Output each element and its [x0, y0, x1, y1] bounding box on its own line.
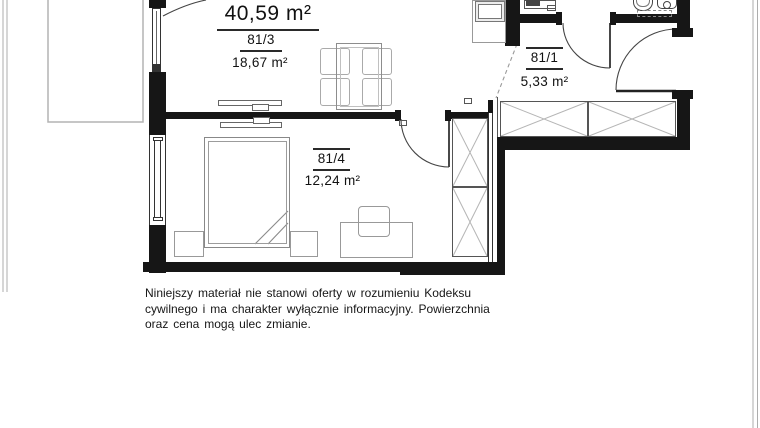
wall-kitchen: [505, 0, 520, 46]
room-81-1-rule-bottom: [526, 68, 563, 70]
entrance-jamb-top: [672, 28, 693, 37]
desk-chair: [358, 206, 390, 237]
bed-mattress: [208, 141, 287, 244]
hallway-wardrobe-right: [588, 101, 676, 137]
wall-bathroom-seg1: [520, 14, 556, 23]
wall-left-seg1: [149, 0, 166, 8]
wall-hall-bottom: [497, 137, 690, 150]
bathroom-door-arc: [563, 23, 610, 68]
total-area-label: 40,59 m²: [217, 2, 319, 26]
room-81-4-area: 12,24 m²: [299, 173, 366, 188]
balcony-door-panel-line: [156, 11, 157, 69]
floorplan-page: 40,59 m² 81/3 18,67 m² 81/1 5,33 m² 81/4…: [0, 0, 760, 428]
bedroom-window-cap-bottom: [153, 217, 163, 221]
valve-symbol: [547, 5, 556, 11]
nightstand-left: [174, 231, 204, 257]
room-81-4-rule-top: [313, 148, 350, 150]
bedroom-window-cap-top: [153, 137, 163, 141]
wall-bottom-step: [400, 270, 505, 275]
bedroom-window-sash: [154, 139, 161, 221]
hallway-wardrobe-left: [500, 101, 588, 137]
balcony-outline: [48, 0, 143, 122]
kitchen-sink-basin: [478, 4, 502, 19]
room-81-4-number: 81/4: [313, 151, 350, 166]
partition-top-junction: [488, 100, 493, 113]
balcony-door-arc: [163, 0, 206, 16]
dining-table-inner: [340, 47, 379, 107]
bedroom-door-arc: [401, 119, 449, 167]
bedroom-wardrobe-bottom: [452, 187, 488, 257]
room-81-1-number: 81/1: [526, 50, 563, 65]
bedroom-door-jamb-right: [445, 110, 451, 121]
room-81-4-rule-bottom: [313, 169, 350, 171]
room-81-3-number: 81/3: [240, 32, 282, 47]
socket-symbol-living: [464, 98, 472, 104]
radiator-living: [218, 100, 282, 106]
room-81-3-rule: [240, 50, 282, 52]
entrance-door-arc: [616, 29, 677, 90]
radiator-bedroom: [220, 122, 282, 128]
disclaimer-block: Niniejszy materiał nie stanowi oferty w …: [145, 286, 525, 333]
nightstand-right: [290, 231, 318, 257]
disclaimer-line-3: oraz cena mogą ulec zmianie.: [145, 317, 525, 333]
disclaimer-line-2: cywilnego i ma charakter wyłącznie infor…: [145, 302, 525, 318]
room-81-3-area: 18,67 m²: [222, 55, 298, 70]
room-boundary-dashed-line: [496, 44, 517, 98]
wall-left-seg2: [149, 72, 166, 135]
radiator-bedroom-valve: [253, 117, 270, 124]
socket-symbol-bedroom: [399, 120, 407, 126]
bedroom-wardrobe-top: [452, 118, 488, 187]
wall-right-lower: [497, 150, 505, 273]
room-81-1-rule-top: [526, 47, 563, 49]
total-area-underline: [217, 29, 319, 31]
wall-divider-seg1: [149, 112, 400, 119]
radiator-bathroom: [637, 10, 672, 17]
wardrobe-niche-edge: [497, 97, 499, 137]
wall-hall-right-seg1: [677, 0, 690, 28]
balcony-door-hinge: [152, 64, 161, 72]
disclaimer-line-1: Niniejszy materiał nie stanowi oferty w …: [145, 286, 525, 302]
room-81-1-area: 5,33 m²: [511, 74, 578, 89]
bathroom-door-jamb-left: [556, 12, 562, 25]
entrance-jamb-bottom: [672, 90, 693, 99]
toilet-bowl: [663, 1, 671, 9]
radiator-living-valve: [252, 104, 269, 111]
partition-bedroom-right: [488, 100, 493, 262]
bathroom-cabinet-dark: [526, 0, 540, 6]
